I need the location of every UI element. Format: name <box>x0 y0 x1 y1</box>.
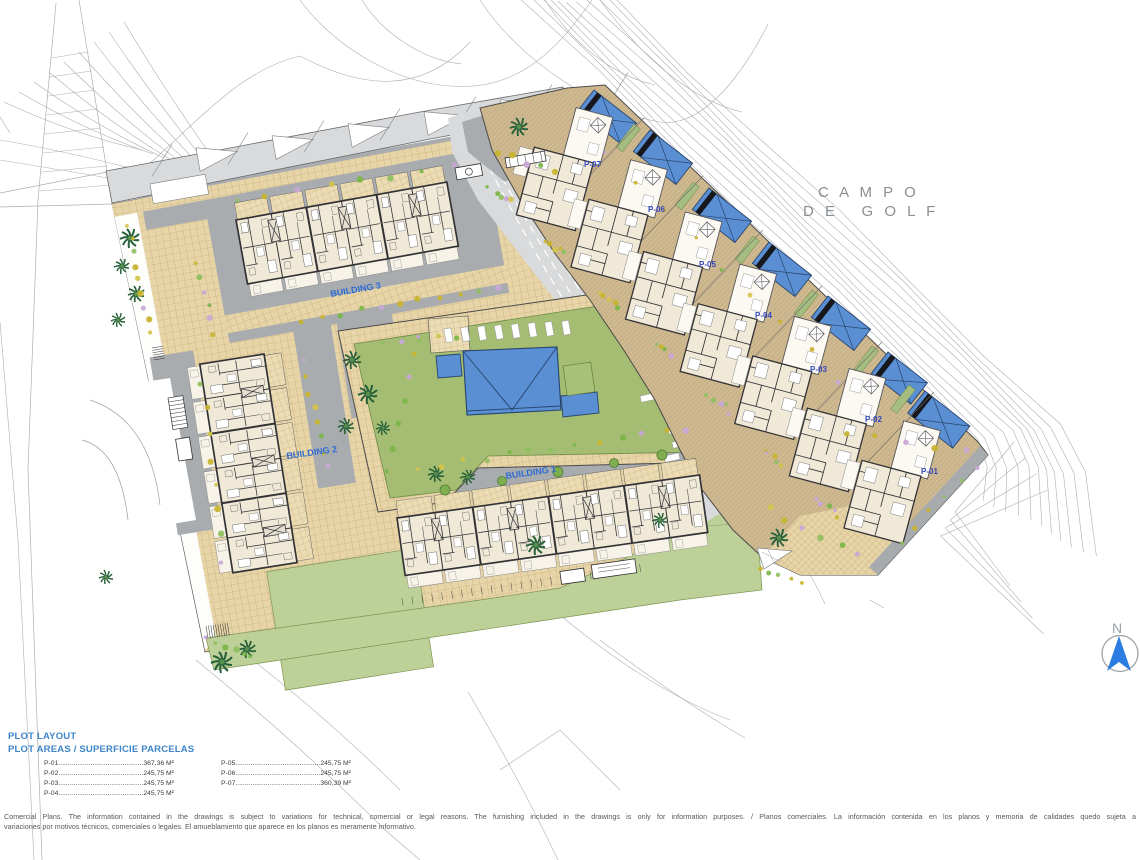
svg-text:P-04: P-04 <box>755 311 772 320</box>
svg-text:C A M P O: C A M P O <box>818 184 919 201</box>
svg-text:P-03: P-03 <box>810 365 827 374</box>
svg-text:D E G O L F: D E G O L F <box>803 203 939 220</box>
svg-text:P-06: P-06 <box>648 205 665 214</box>
svg-text:P-02: P-02 <box>865 415 882 424</box>
svg-text:P-07: P-07 <box>584 160 601 169</box>
svg-text:N: N <box>1112 620 1122 636</box>
svg-text:P-01: P-01 <box>921 467 938 476</box>
svg-text:P-05: P-05 <box>699 260 716 269</box>
